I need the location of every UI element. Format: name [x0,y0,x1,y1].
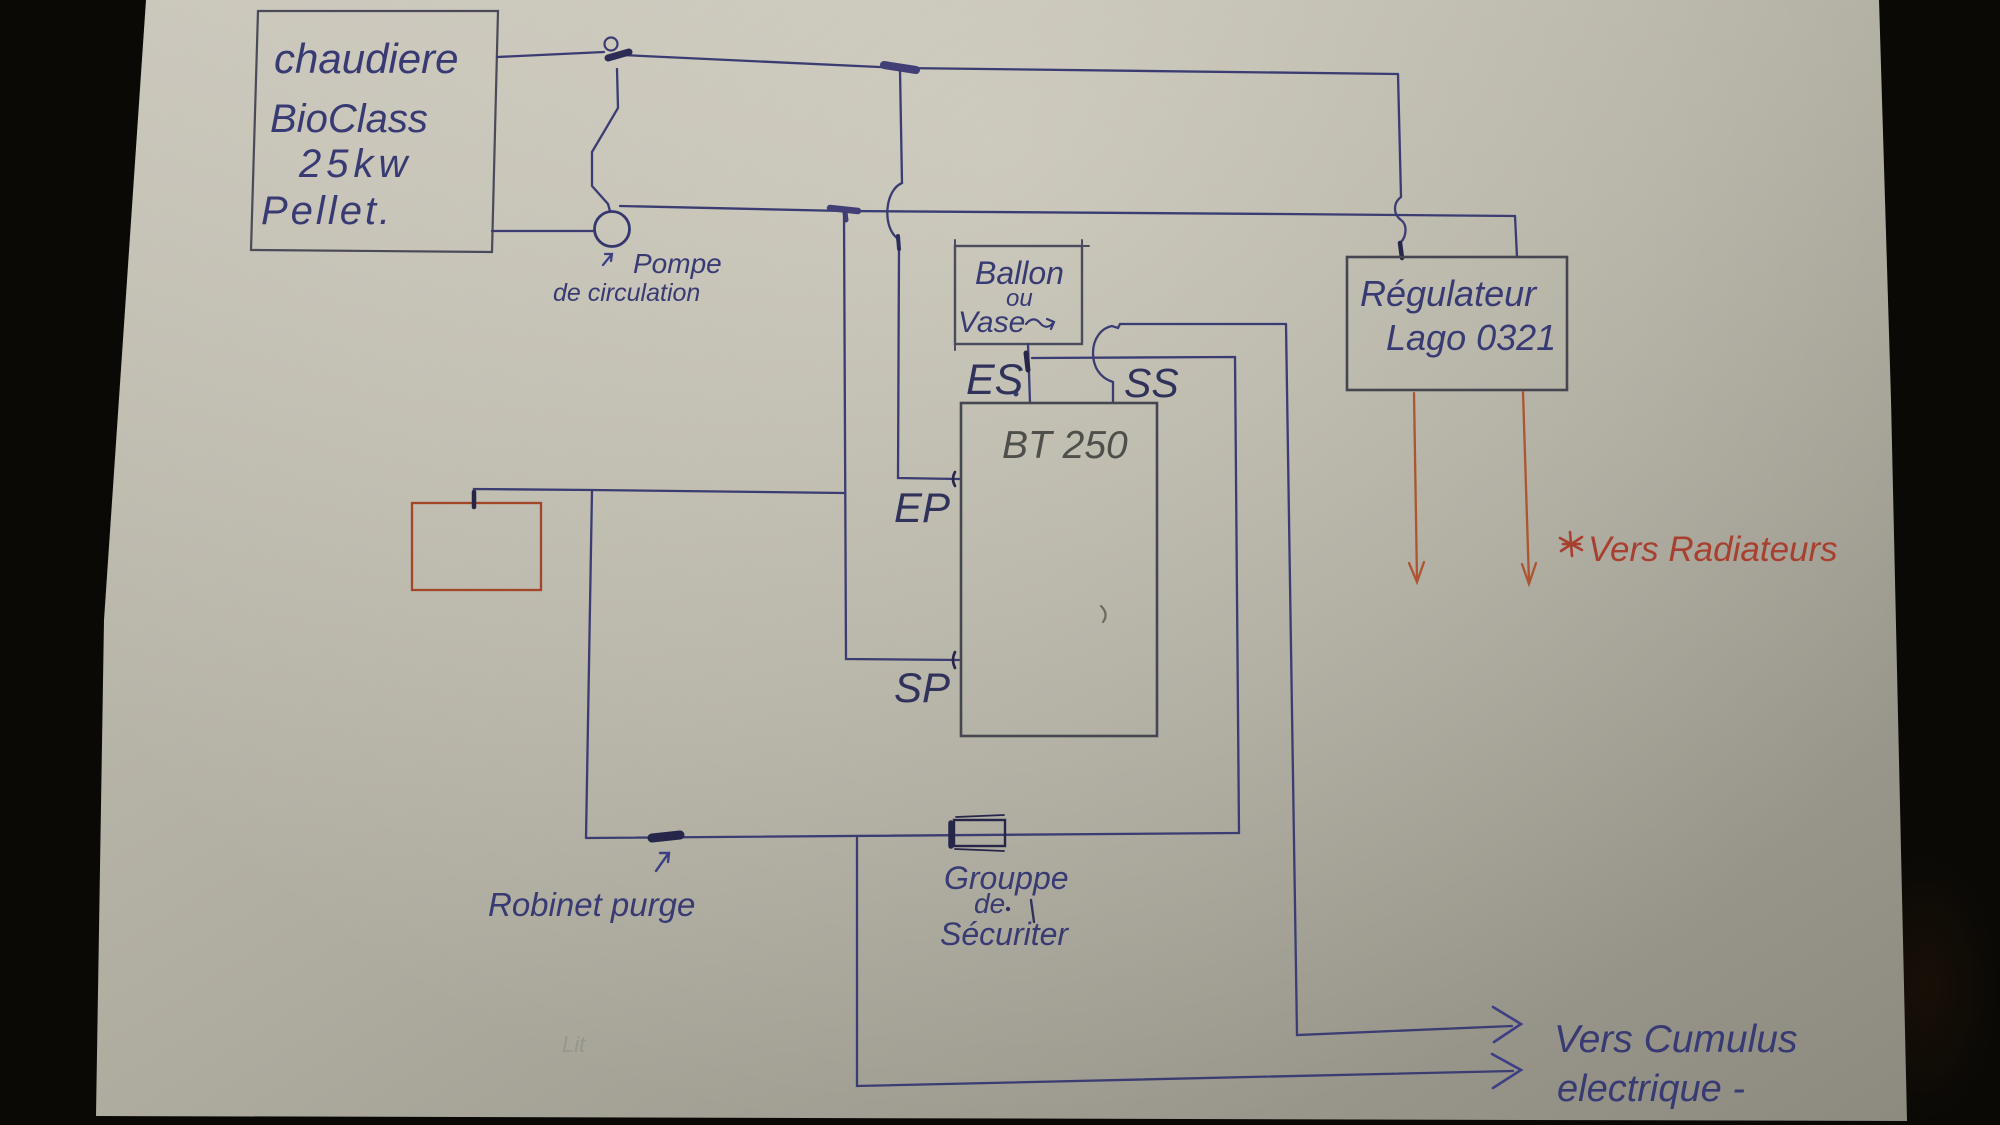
svg-text:EP: EP [894,484,950,531]
svg-text:ES: ES [966,356,1024,404]
svg-text:Régulateur: Régulateur [1360,273,1538,314]
svg-text:SS: SS [1124,360,1179,406]
svg-text:de: de [974,888,1005,919]
svg-text:Robinet purge: Robinet purge [488,886,695,923]
svg-text:Vers Cumulus: Vers Cumulus [1554,1018,1797,1061]
svg-text:Vase: Vase [958,306,1025,339]
svg-text:de circulation: de circulation [553,279,700,307]
svg-text:Lit: Lit [562,1032,586,1057]
svg-text:Vers Radiateurs: Vers Radiateurs [1588,530,1838,569]
svg-text:25kw: 25kw [298,142,412,186]
svg-text:Sécuriter: Sécuriter [940,916,1069,952]
svg-text:electrique -: electrique - [1557,1068,1745,1110]
svg-text:SP: SP [894,664,950,711]
svg-text:Grouppe: Grouppe [944,860,1069,896]
svg-text:BioClass: BioClass [270,97,428,141]
svg-text:Pellet.: Pellet. [261,189,393,233]
svg-text:Pompe: Pompe [633,248,722,279]
svg-text:Lago 0321: Lago 0321 [1386,317,1556,358]
svg-text:BT 250: BT 250 [1002,424,1128,467]
svg-text:chaudiere: chaudiere [274,35,458,82]
